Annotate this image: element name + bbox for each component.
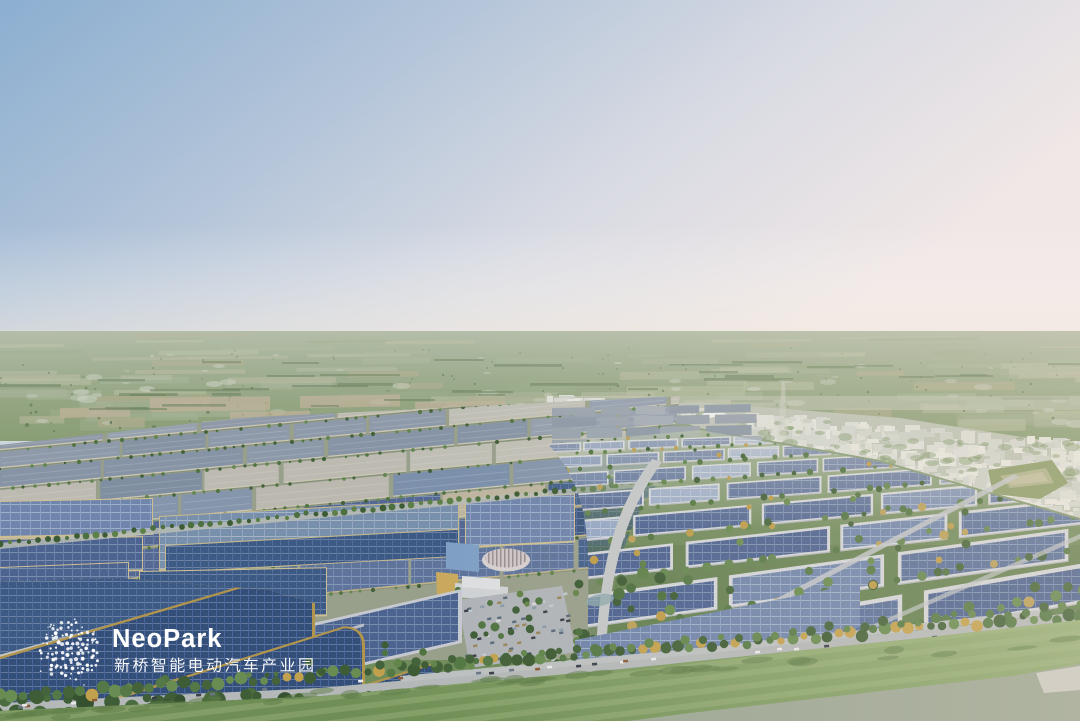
svg-text:NeoPark: NeoPark — [112, 625, 222, 653]
